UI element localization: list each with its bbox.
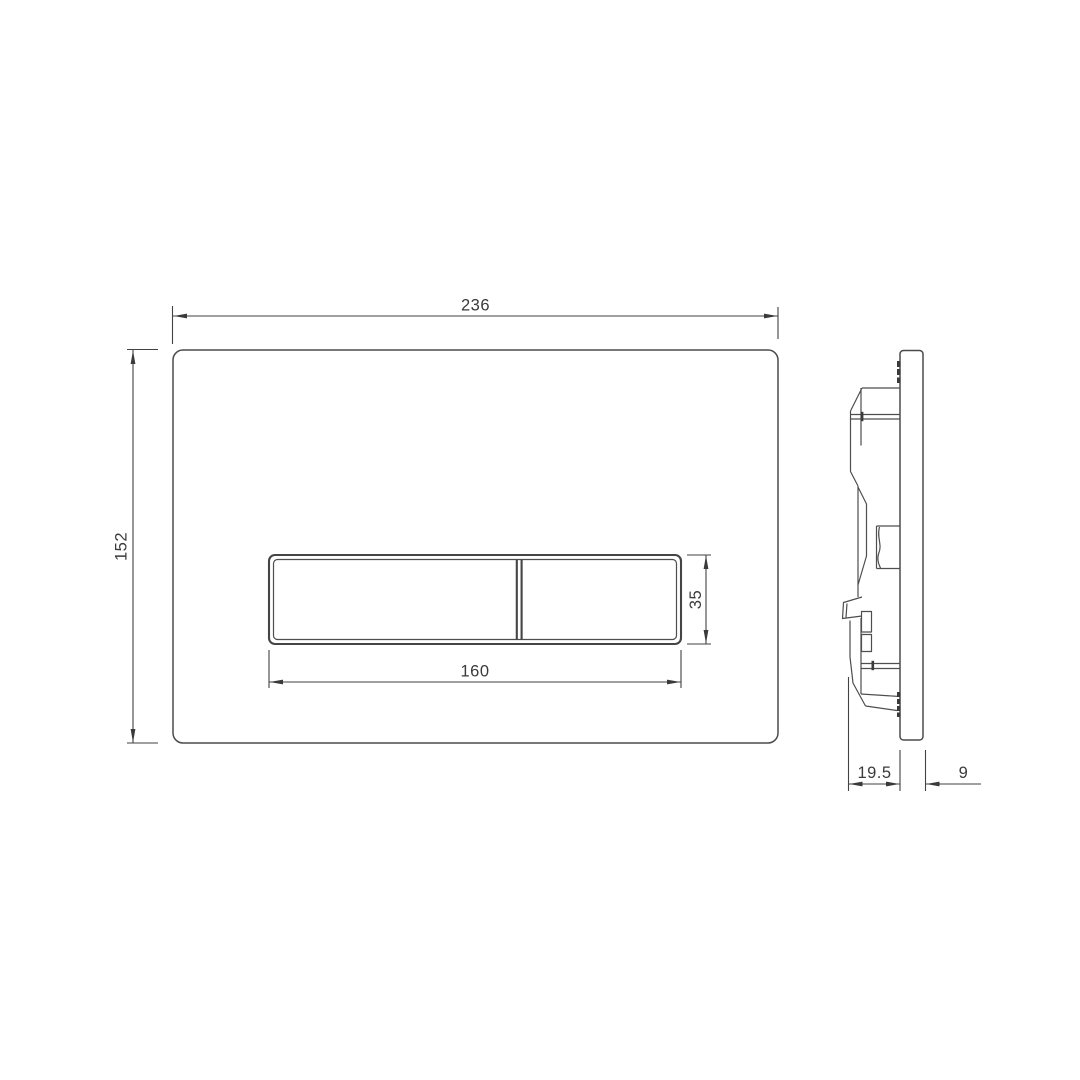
dimension-label-button-height: 35	[687, 590, 705, 609]
dimension-label-plate-height: 152	[113, 532, 131, 561]
arrowhead-left	[174, 314, 188, 319]
arrowhead-top	[704, 556, 709, 570]
mechanism-box-lower	[862, 635, 872, 652]
tooth	[897, 699, 900, 704]
dimension-button-width: 160	[269, 650, 681, 688]
dimension-label-button-width: 160	[460, 663, 489, 681]
clip-teeth-top	[897, 361, 900, 383]
mechanism-box-upper	[862, 612, 872, 633]
tooth	[897, 706, 900, 711]
side-view	[843, 351, 924, 741]
mechanism-profile	[850, 388, 900, 706]
bottom-wedge	[861, 694, 900, 711]
extension-lines	[127, 350, 158, 744]
tooth	[897, 369, 900, 375]
dimension-label-installation-depth: 19.5	[857, 764, 891, 782]
arrowhead-right	[886, 782, 900, 787]
rail-latch-top	[861, 412, 864, 421]
dimension-label-plate-width: 236	[461, 297, 490, 315]
dimension-plate-thickness: 9	[926, 750, 982, 791]
arrowhead-left	[270, 680, 284, 685]
arrowhead-top	[131, 351, 136, 365]
mount-rail-top	[851, 415, 900, 420]
button-panel	[269, 555, 681, 644]
dimension-plate-width: 236	[173, 297, 779, 345]
dimension-installation-depth: 19.5	[849, 677, 901, 791]
arrowhead-left	[849, 782, 863, 787]
tooth	[897, 378, 900, 384]
arrowhead-right	[764, 314, 778, 319]
rail-latch-bottom	[872, 661, 875, 670]
technical-drawing-canvas: 236 152 160 35	[0, 0, 1080, 1080]
plate-outline	[173, 350, 778, 743]
arrowhead-right	[667, 680, 681, 685]
mount-rail-bottom	[861, 664, 900, 669]
arrowhead-bottom	[704, 630, 709, 644]
front-view	[173, 350, 778, 743]
tooth	[897, 692, 900, 697]
arrowhead-bottom	[131, 729, 136, 743]
side-plate-outline	[900, 351, 923, 741]
button-frame-inner	[274, 560, 677, 640]
button-frame-outer	[269, 555, 681, 644]
drawing-svg: 236 152 160 35	[0, 0, 1080, 1080]
dimension-plate-height: 152	[113, 350, 159, 744]
dimension-label-plate-thickness: 9	[959, 764, 969, 782]
dimension-button-height: 35	[687, 555, 711, 644]
tooth	[897, 361, 900, 367]
pusher-detail	[877, 526, 901, 569]
arrowhead-left	[926, 782, 940, 787]
clip-tab	[843, 597, 863, 619]
tooth	[897, 713, 900, 718]
